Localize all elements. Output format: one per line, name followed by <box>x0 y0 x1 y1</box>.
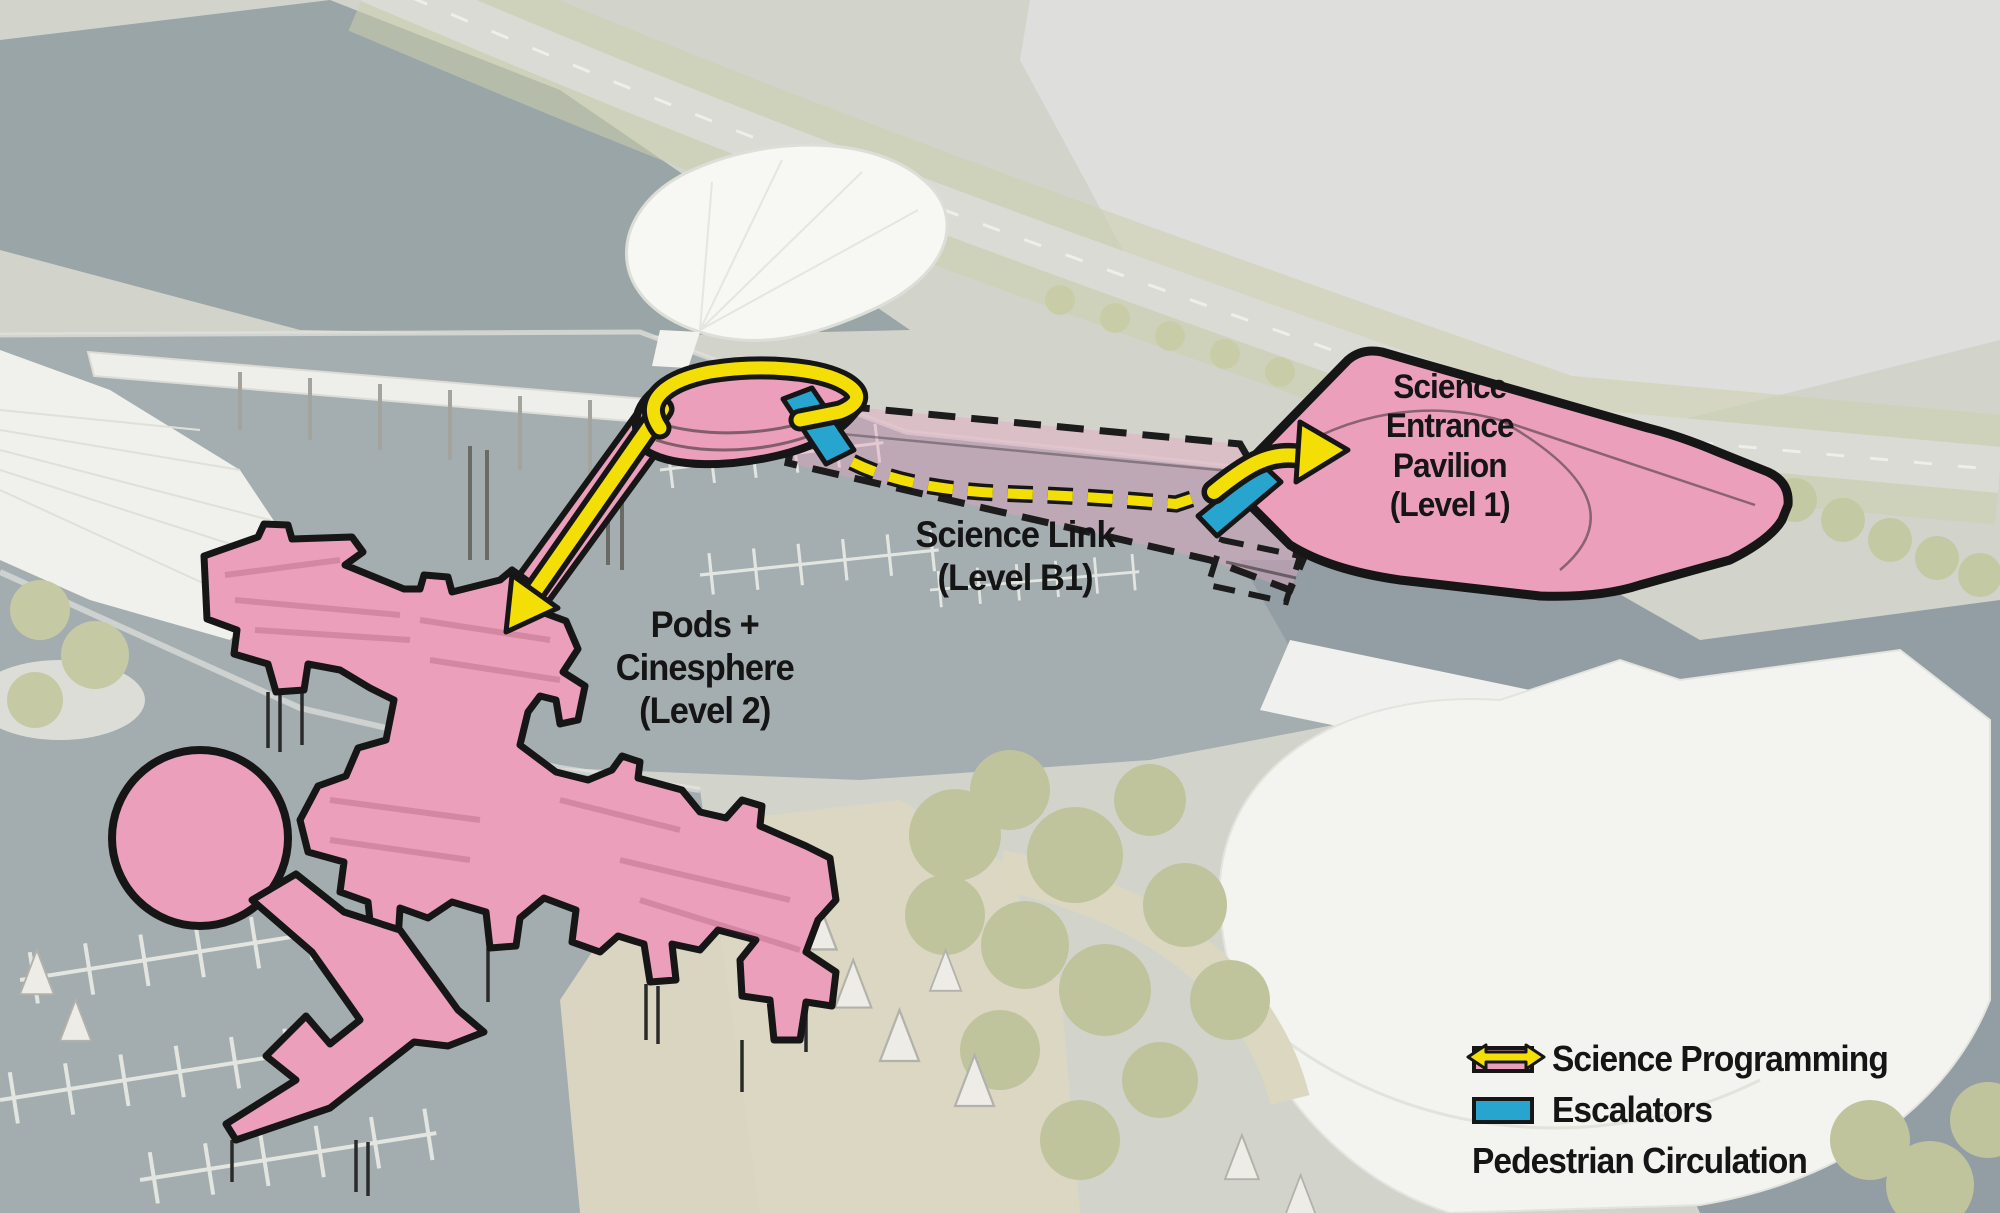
legend-label: Pedestrian Circulation <box>1472 1140 1807 1182</box>
double-arrow-icon <box>1464 1040 1548 1074</box>
double-arrow-shape <box>1468 1045 1544 1069</box>
legend: Science Programming Escalators Pedestria… <box>1472 1040 1913 1180</box>
site-plan-diagram: Science Entrance Pavilion (Level 1) Scie… <box>0 0 2000 1213</box>
legend-row-pedestrian-circulation: Pedestrian Circulation <box>1472 1142 1913 1180</box>
pavilion-label-text: Science Entrance Pavilion (Level 1) <box>1386 368 1514 526</box>
escalators-swatch <box>1472 1097 1534 1124</box>
site-plan-svg <box>0 0 2000 1213</box>
pods-label: Pods + Cinesphere (Level 2) <box>545 604 865 733</box>
legend-row-escalators: Escalators <box>1472 1091 1913 1129</box>
legend-label: Science Programming <box>1552 1038 1888 1080</box>
pods-label-text: Pods + Cinesphere (Level 2) <box>616 604 794 733</box>
science-link-label-text: Science Link (Level B1) <box>915 514 1114 600</box>
pavilion-label: Science Entrance Pavilion (Level 1) <box>1290 368 1610 526</box>
legend-label: Escalators <box>1552 1089 1712 1131</box>
science-link-label: Science Link (Level B1) <box>855 514 1175 600</box>
